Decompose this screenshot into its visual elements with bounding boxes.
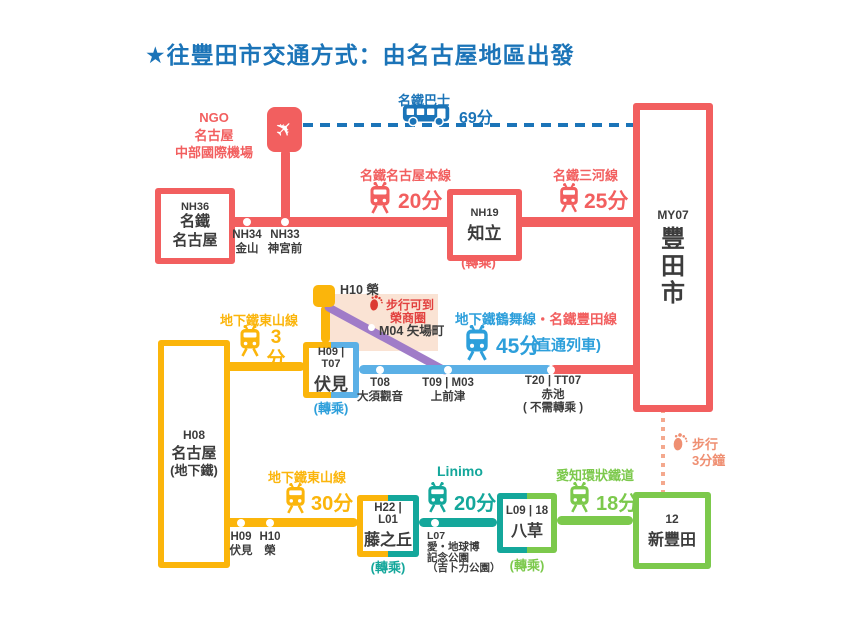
station-box-yakusa: L09 | 18 八草 [497, 493, 557, 553]
station-name: 赤池 [511, 389, 595, 403]
station-name: 知立 [468, 219, 502, 244]
station-code: T09 | M03 [408, 377, 488, 391]
airport-name: 名古屋 [163, 127, 265, 145]
transfer-note-fujigaoka: (轉乘) [357, 560, 419, 576]
station-code: NH19 [470, 207, 498, 219]
station-code: NH36 [181, 201, 209, 213]
station-name: 新豐田 [648, 526, 696, 550]
station-dot-sakae-bottom [266, 519, 274, 527]
station-code: 12 [665, 512, 678, 526]
plane-icon: ✈ [271, 116, 298, 143]
station-box-shintoyota: 12 新豐田 [633, 492, 711, 569]
station-code: NH33 [259, 229, 311, 243]
station-name: 伏見 [314, 370, 348, 395]
station-name: 上前津 [408, 391, 488, 405]
station-name: 大須觀音 [348, 391, 412, 405]
station-label-sakae-bottom: H10 榮 [252, 531, 288, 559]
station-dot-jingumae [281, 218, 289, 226]
aikan-time: 18分 [596, 487, 638, 516]
station-label-yabacho: M04 矢場町 [379, 320, 444, 339]
page-title: ★往豐田市交通方式：由名古屋地區出發 [145, 36, 575, 70]
train-icon [425, 482, 450, 513]
tsurumai-label-red: 名鐵豐田線 [550, 312, 618, 327]
higashiyama-time: 30分 [311, 487, 353, 516]
time-unit: 分 [264, 349, 288, 371]
station-dot-fushimi-bottom [237, 519, 245, 527]
station-box-chiryu: NH19 知立 [447, 189, 522, 261]
train-icon [283, 483, 308, 514]
higashiyama-top-rail [218, 362, 305, 371]
station-dot-aichikyuhaku [431, 519, 439, 527]
linimo-time: 20分 [454, 487, 496, 516]
station-name: (地下鐵) [170, 463, 218, 480]
station-note: ( 不需轉乘 ) [511, 402, 595, 416]
station-name: 藤之丘 [364, 526, 412, 550]
mikawa-time: 25分 [584, 185, 628, 215]
station-label-akaike: T20 | TT07 赤池 ( 不需轉乘 ) [511, 375, 595, 416]
airport-code: NGO [163, 109, 265, 127]
station-name: 名古屋 [171, 444, 216, 464]
train-icon [237, 325, 263, 357]
linimo-line-label: Linimo [437, 463, 483, 479]
station-name: 榮 [252, 545, 288, 559]
train-icon [567, 482, 592, 513]
bus-time: 69分 [459, 104, 493, 128]
walk-dotted-line [661, 400, 665, 492]
train-icon [367, 182, 393, 214]
station-label-jingumae: NH33 神宮前 [259, 229, 311, 257]
tsurumai-rail [359, 365, 552, 374]
station-dot-osu-kannon [376, 366, 384, 374]
station-name: 市 [661, 280, 685, 307]
airport-icon: ✈ [267, 107, 302, 152]
station-name: 八草 [511, 517, 543, 541]
station-box-toyotashi: MY07 豐 田 市 [633, 103, 713, 412]
station-code: L09 | 18 [506, 505, 548, 517]
station-code: T20 | TT07 [511, 375, 595, 389]
station-dot-kamimaezu [444, 366, 452, 374]
bus-icon [402, 102, 452, 128]
train-icon [462, 325, 492, 361]
station-name: 神宮前 [259, 243, 311, 257]
station-name: 豐 [661, 226, 685, 253]
station-name: 田 [661, 253, 685, 280]
station-code: H22 | L01 [363, 502, 413, 526]
station-code: T08 [348, 377, 412, 391]
train-icon [557, 183, 581, 213]
station-code: MY07 [657, 208, 688, 222]
station-code: H10 [252, 531, 288, 545]
footprint-icon [669, 430, 691, 454]
station-code: H09 | T07 [309, 346, 353, 370]
station-name: 名鐵 [180, 213, 210, 232]
transfer-note-chiryu: (轉乘) [447, 255, 510, 271]
transfer-note-yakusa: (轉乘) [497, 558, 557, 574]
station-box-fujigaoka: H22 | L01 藤之丘 [357, 495, 419, 557]
station-label-kamimaezu: T09 | M03 上前津 [408, 377, 488, 405]
airport-subname: 中部國際機場 [163, 144, 265, 162]
station-dot-kanayama [243, 218, 251, 226]
walk-shintoyota-label2: 3分鐘 [692, 450, 725, 469]
station-code: H08 [183, 428, 205, 442]
station-label-osu-kannon: T08 大須觀音 [348, 377, 412, 405]
aikan-rail [557, 516, 633, 525]
mikawa-line-label: 名鐵三河線 [553, 165, 618, 184]
station-square-sakae [313, 285, 335, 307]
station-name: 名古屋 [172, 232, 217, 251]
tsurumai-note: (直通列車) [531, 334, 601, 355]
transit-diagram: ★往豐田市交通方式：由名古屋地區出發 NGO 名古屋 中部國際機場 ✈ 名鐵巴士… [0, 0, 850, 638]
airport-branch-rail [281, 149, 290, 222]
station-dot-akaike [547, 366, 555, 374]
higashiyama-top-time: 3 分 [264, 327, 288, 371]
station-dot-yabacho [368, 324, 375, 331]
tsurumai-label-sep: ・ [536, 312, 550, 327]
honsen-time: 20分 [398, 185, 442, 215]
airport-label: NGO 名古屋 中部國際機場 [163, 109, 265, 162]
time-number: 3 [264, 327, 288, 349]
station-box-meitetsu-nagoya: NH36 名鐵 名古屋 [155, 188, 235, 264]
toyota-line-rail [550, 365, 638, 374]
